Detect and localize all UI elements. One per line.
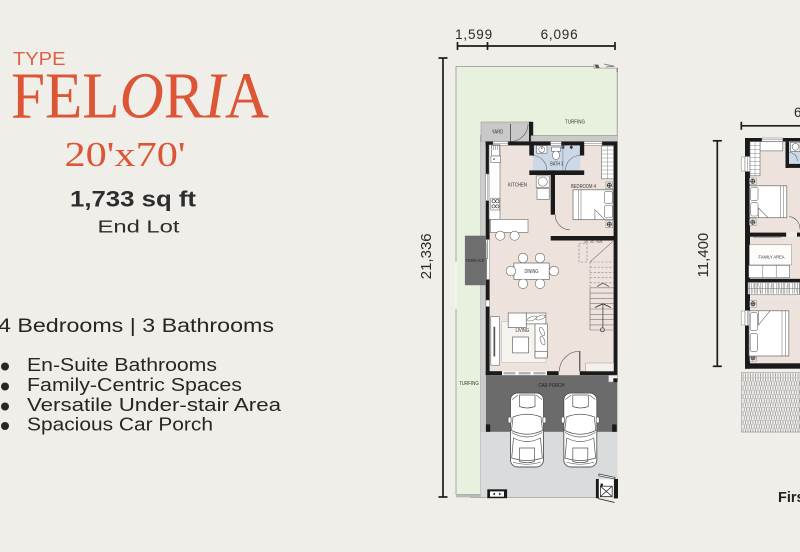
svg-text:En-Suite Bathrooms: En-Suite Bathrooms xyxy=(27,354,217,375)
svg-text:TURFING: TURFING xyxy=(565,120,585,126)
svg-text:4 Bedrooms | 3 Bathrooms: 4 Bedrooms | 3 Bathrooms xyxy=(0,316,274,337)
svg-text:First Floor: First Floor xyxy=(778,490,800,506)
svg-text:W. 4C +5/8: W. 4C +5/8 xyxy=(585,240,603,244)
svg-text:FAMILY AREA: FAMILY AREA xyxy=(759,254,786,259)
svg-text:BEDROOM 4: BEDROOM 4 xyxy=(571,184,596,190)
svg-text:KITCHEN: KITCHEN xyxy=(508,182,527,188)
svg-text:1,599: 1,599 xyxy=(455,27,493,42)
svg-text:Family-Centric Spaces: Family-Centric Spaces xyxy=(27,374,242,395)
svg-text:FELORIA: FELORIA xyxy=(11,60,269,133)
svg-text:DINING: DINING xyxy=(525,269,539,275)
svg-text:Versatile Under-stair Area: Versatile Under-stair Area xyxy=(27,394,282,415)
svg-text:6,096: 6,096 xyxy=(794,105,800,120)
svg-text:LIVING: LIVING xyxy=(516,328,530,334)
svg-text:11,400: 11,400 xyxy=(695,233,712,278)
svg-text:BATH 3: BATH 3 xyxy=(550,161,563,167)
svg-text:1,733 sq ft: 1,733 sq ft xyxy=(70,187,197,212)
svg-text:20'x70': 20'x70' xyxy=(65,135,186,174)
svg-text:End Lot: End Lot xyxy=(98,217,180,237)
svg-text:YARD: YARD xyxy=(492,130,504,136)
svg-text:21,336: 21,336 xyxy=(418,233,435,279)
svg-text:6,096: 6,096 xyxy=(541,27,579,42)
svg-text:CAR PORCH: CAR PORCH xyxy=(539,383,565,389)
svg-text:TURFING: TURFING xyxy=(459,381,479,387)
svg-text:TERRACE: TERRACE xyxy=(466,258,485,264)
svg-text:Spacious Car Porch: Spacious Car Porch xyxy=(27,414,213,435)
